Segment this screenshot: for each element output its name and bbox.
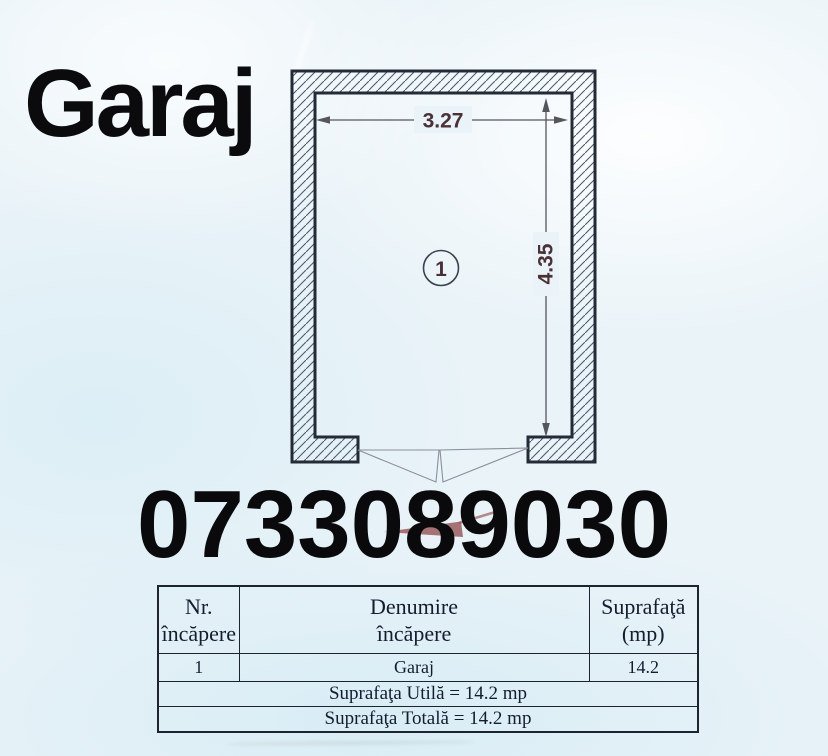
summary-row-totala: Suprafaţa Totală = 14.2 mp [158,707,698,733]
col-header-denumire-incapere: Denumire încăpere [239,586,589,654]
scanned-listing-page: Garaj 3.27 4.35 [0,0,828,756]
scan-smudge [225,740,475,746]
cell-room-area: 14.2 [589,654,698,682]
col-header-suprafata-mp: Suprafaţă (mp) [589,586,698,654]
summary-row-utila: Suprafaţa Utilă = 14.2 mp [158,682,698,707]
table-row: 1 Garaj 14.2 [158,654,698,682]
height-dimension-label: 4.35 [535,243,558,284]
col-header-nr-incapere: Nr. încăpere [158,586,239,654]
page-title: Garaj [24,56,254,152]
summary-utila-text: Suprafaţa Utilă = 14.2 mp [158,682,698,707]
floor-plan-svg: 3.27 4.35 1 [250,40,630,500]
summary-totala-text: Suprafaţa Totală = 14.2 mp [158,707,698,733]
room-number-bubble: 1 [424,251,459,286]
room-number: 1 [435,258,447,281]
area-table: Nr. încăpere Denumire încăpere Suprafaţă… [157,585,699,733]
width-dimension: 3.27 [316,106,568,133]
table-header-row: Nr. încăpere Denumire încăpere Suprafaţă… [158,586,698,654]
height-dimension: 4.35 [533,98,559,437]
cell-room-name: Garaj [239,654,589,682]
phone-number: 0733089030 [0,477,818,573]
cell-room-nr: 1 [158,654,239,682]
width-dimension-label: 3.27 [423,110,464,133]
